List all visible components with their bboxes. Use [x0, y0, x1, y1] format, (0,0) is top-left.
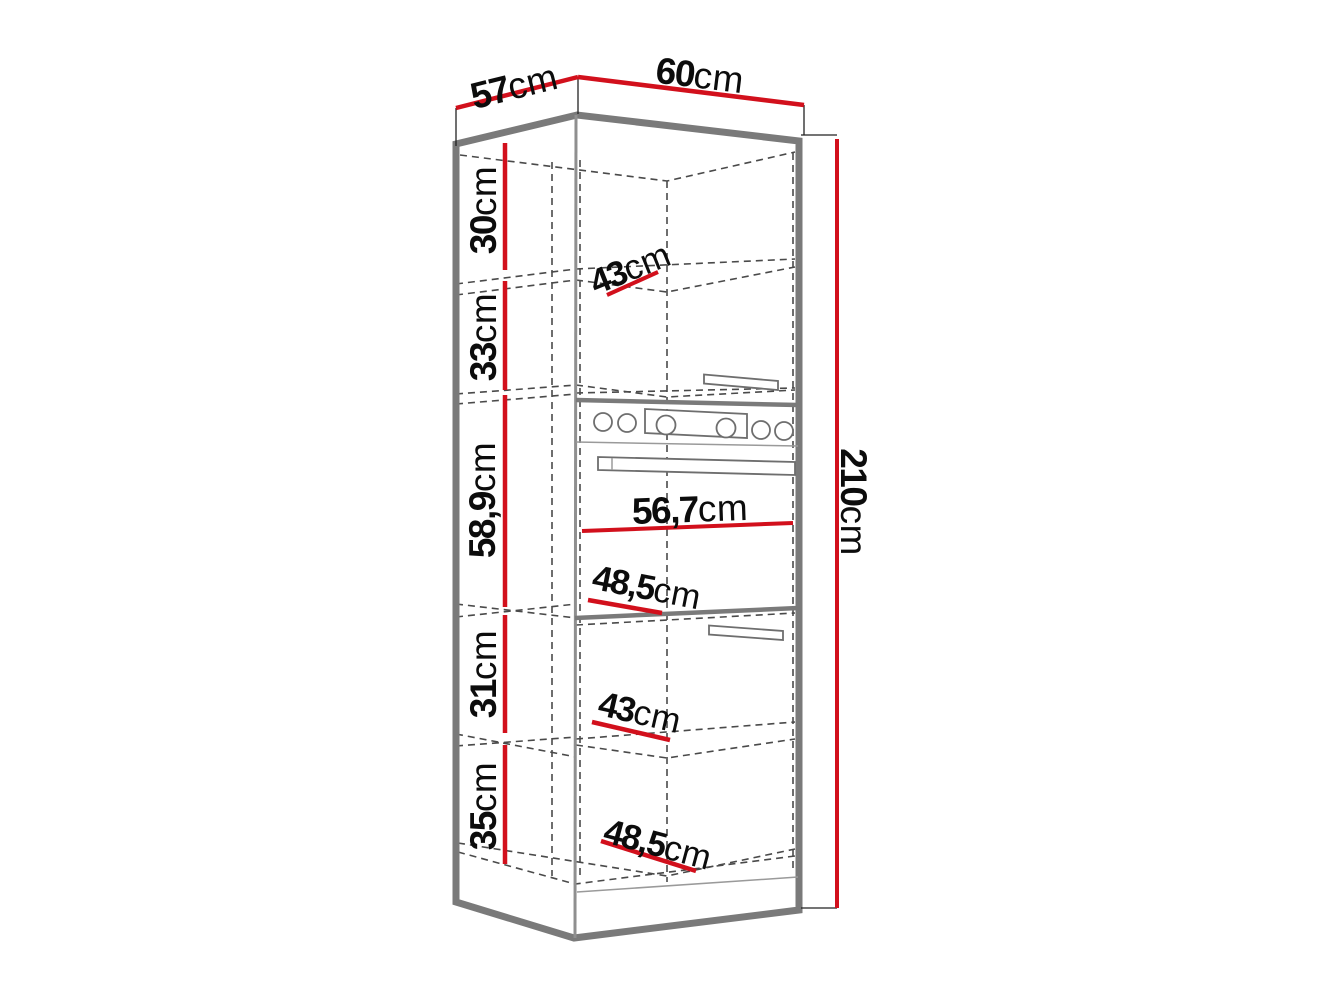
interior-top-edges — [460, 152, 795, 181]
dim-value: 60 — [654, 50, 698, 95]
dim-unit: cm — [463, 762, 504, 812]
diagram-canvas: 57cm 60cm 210cm 30cm 33cm 58,9cm 31cm 35… — [0, 0, 1323, 992]
dim-value: 31 — [463, 679, 504, 718]
dim-unit: cm — [833, 505, 874, 555]
dim-label-top-width: 60cm — [654, 50, 747, 101]
dim-label-interior-43-top: 43cm — [584, 235, 676, 302]
oven-control-panel — [594, 409, 793, 440]
shelf4-side-edge-b — [456, 737, 576, 746]
dim-label-section-33: 33cm — [463, 293, 504, 381]
oven-knob-4 — [717, 419, 736, 438]
oven-knob-3 — [657, 416, 676, 435]
lower-door-handle — [709, 626, 783, 641]
shelf4-side-edge-a — [456, 734, 576, 757]
cabinet-dimension-diagram: 57cm 60cm 210cm 30cm 33cm 58,9cm 31cm 35… — [0, 0, 1323, 992]
shelf2-side-edge-b — [456, 394, 576, 404]
oven-knob-2 — [618, 414, 636, 432]
dim-label-section-58-9: 58,9cm — [462, 442, 503, 558]
oven-knob-6 — [775, 422, 793, 440]
upper-door-handle — [704, 375, 778, 391]
oven-knob-5 — [752, 421, 770, 439]
dim-value: 35 — [463, 811, 504, 850]
dim-value: 48,5 — [600, 812, 671, 866]
shelf4-back-edge — [576, 739, 795, 758]
oven-top-division — [576, 400, 798, 405]
dim-unit: cm — [691, 54, 746, 101]
dim-value: 58,9 — [462, 491, 503, 558]
cabinet-front-left-edge — [575, 115, 576, 938]
dim-unit: cm — [463, 630, 504, 680]
dim-value: 30 — [463, 215, 504, 254]
dim-unit: cm — [463, 293, 504, 343]
dim-unit: cm — [463, 166, 504, 216]
shelf2-side-edge-a — [456, 385, 576, 394]
dim-unit: cm — [697, 487, 749, 530]
dim-unit: cm — [660, 828, 716, 878]
dim-value: 33 — [463, 342, 504, 381]
dim-label-section-30: 30cm — [463, 166, 504, 254]
control-strip-bottom-line — [576, 442, 798, 446]
dim-label-interior-43-lower: 43cm — [595, 684, 685, 741]
oven-door-handle — [598, 457, 795, 475]
dim-label-interior-56-7: 56,7cm — [631, 487, 749, 532]
dim-label-section-35: 35cm — [463, 762, 504, 850]
dim-label-top-depth: 57cm — [466, 56, 562, 117]
oven-knob-1 — [594, 413, 612, 431]
dim-value: 210 — [833, 448, 874, 506]
floor-near-edges — [458, 852, 795, 884]
dim-unit: cm — [462, 442, 503, 492]
dim-label-total-height: 210cm — [833, 448, 874, 556]
dim-unit: cm — [503, 56, 562, 108]
dim-label-section-31: 31cm — [463, 630, 504, 718]
dim-value: 56,7 — [631, 489, 698, 532]
